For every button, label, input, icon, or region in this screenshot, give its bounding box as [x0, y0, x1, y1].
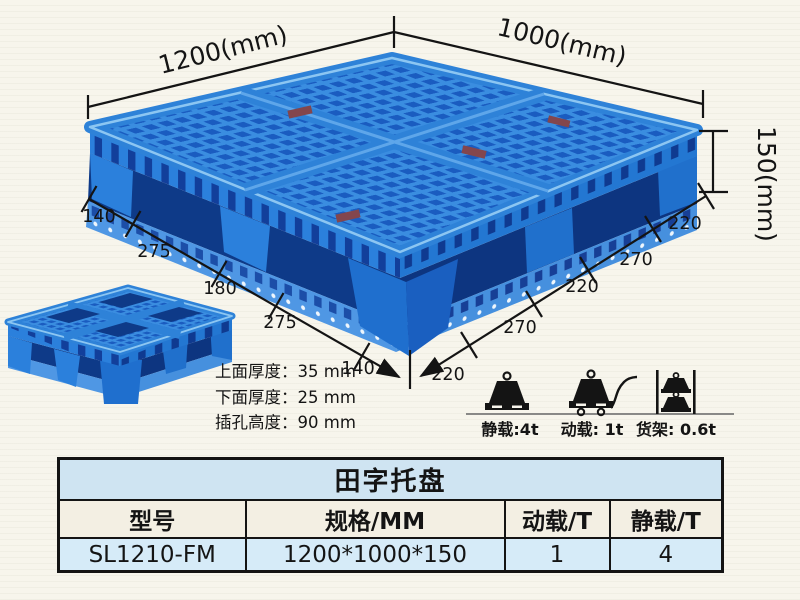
cell-static-load: 4 [610, 538, 723, 572]
rack-load-shelf-icon [656, 370, 696, 414]
note-fork-height: 插孔高度：90 mm [215, 413, 356, 432]
dim-left-2: 275 [137, 242, 170, 262]
dim-label-1000: 1000(mm) [494, 12, 629, 71]
rack-load-label: 货架: 0.6t [636, 420, 716, 439]
pallet-figure: 1200(mm) 1000(mm) 150(mm) 140 275 180 27… [0, 0, 800, 455]
header-spec: 规格/MM [246, 500, 505, 538]
note-bottom-thickness: 下面厚度：25 mm [215, 388, 356, 407]
table-title-row: 田字托盘 [59, 459, 723, 501]
small-pallet-center-foot [100, 360, 142, 404]
dim-left-4: 275 [263, 313, 296, 333]
table-title: 田字托盘 [59, 459, 723, 501]
dim-label-150: 150(mm) [752, 126, 781, 242]
dim-left-1: 140 [82, 207, 115, 227]
product-sheet: 1200(mm) 1000(mm) 150(mm) 140 275 180 27… [0, 0, 800, 600]
static-load-weight-icon [485, 373, 529, 411]
table-header-row: 型号 规格/MM 动载/T 静载/T [59, 500, 723, 538]
dynamic-load-label: 动载: 1t [561, 420, 624, 439]
dim-label-1200: 1200(mm) [155, 20, 290, 80]
dim-right-3: 220 [565, 277, 598, 297]
note-top-thickness: 上面厚度：35 mm [215, 362, 356, 381]
dim-right-4: 270 [619, 250, 652, 270]
table-row: SL1210-FM 1200*1000*150 1 4 [59, 538, 723, 572]
cell-spec: 1200*1000*150 [246, 538, 505, 572]
header-static-load: 静载/T [610, 500, 723, 538]
header-model: 型号 [59, 500, 246, 538]
header-dynamic-load: 动载/T [505, 500, 610, 538]
dim-left-3: 180 [203, 279, 236, 299]
spec-table: 田字托盘 型号 规格/MM 动载/T 静载/T SL1210-FM 1200*1… [57, 457, 724, 573]
static-load-label: 静载:4t [481, 420, 539, 439]
cell-dynamic-load: 1 [505, 538, 610, 572]
dynamic-load-trolley-icon [569, 371, 637, 416]
dim-right-2: 270 [503, 318, 536, 338]
small-pallet [8, 288, 232, 404]
dim-right-1: 220 [431, 365, 464, 385]
load-capacity-icons: 静载:4t 动载: 1t 货架: 0.6t [466, 370, 734, 439]
dim-right-5: 220 [668, 214, 701, 234]
cell-model: SL1210-FM [59, 538, 246, 572]
